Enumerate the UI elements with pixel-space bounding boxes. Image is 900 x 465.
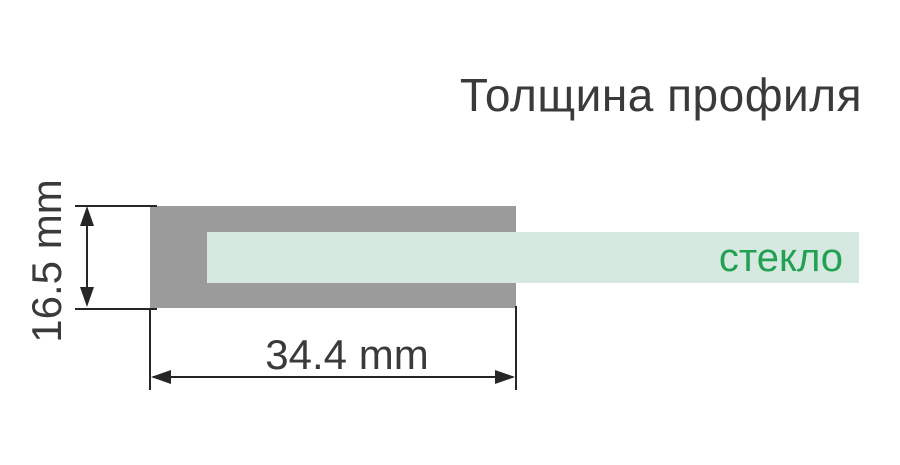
diagram-canvas: Толщина профиля стекло 16.5 mm 34.4 mm — [0, 0, 900, 465]
glass-label: стекло — [719, 238, 843, 278]
arrowhead-down-icon — [80, 287, 94, 307]
page-title: Толщина профиля — [460, 68, 862, 122]
height-dimension-label: 16.5 mm — [26, 151, 72, 371]
arrowhead-up-icon — [80, 206, 94, 226]
width-dimension-label: 34.4 mm — [197, 334, 497, 378]
arrowhead-right-icon — [495, 370, 515, 384]
glass-panel: стекло — [207, 232, 859, 283]
arrowhead-left-icon — [151, 370, 171, 384]
extension-line-bottom — [75, 308, 157, 310]
extension-line-right — [515, 306, 517, 390]
